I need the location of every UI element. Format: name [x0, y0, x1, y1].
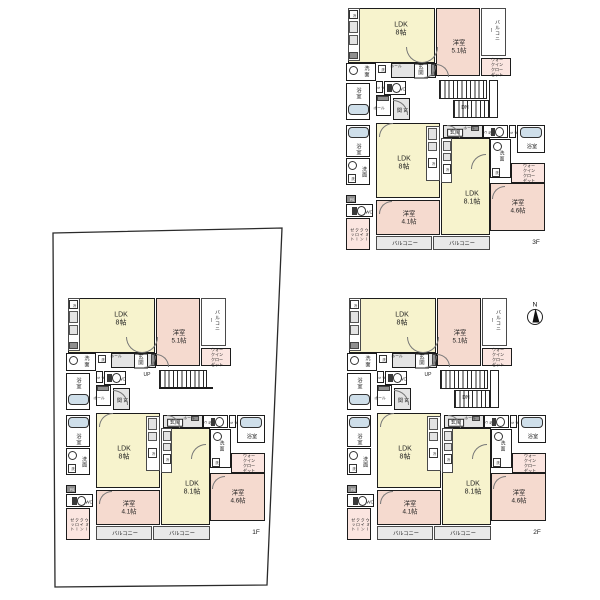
washer-glyph: 洗	[382, 358, 386, 362]
room-balcony-c: バルコニー	[434, 526, 491, 540]
toilet-bowl	[77, 496, 87, 506]
balcony-c-label: バルコニー	[449, 241, 475, 247]
kitchen-counter-icon	[443, 153, 451, 161]
bathtub-icon	[348, 104, 369, 115]
bathtub-icon	[349, 417, 370, 428]
toilet-tank	[107, 374, 112, 382]
wic-a-label: ウォークイン クローゼット	[491, 58, 504, 78]
washer-glyph: 洗	[215, 461, 219, 465]
sink-icon	[349, 66, 358, 75]
wic-c-label: ウォークイン クローゼット	[242, 454, 257, 474]
fridge-icon: 冷	[163, 454, 171, 464]
fridge-glyph: 冷	[432, 162, 436, 166]
ldk-b-label: LDK 8帖	[398, 446, 412, 463]
kitchen-counter-icon	[428, 142, 437, 151]
stair-landing-line	[159, 387, 213, 389]
wic-a-label: ウォークイン クローゼット	[492, 348, 505, 368]
ldk-a-label: LDK 8帖	[114, 312, 128, 329]
yoshitsu-51-label: 洋室 5.1帖	[452, 329, 467, 344]
fridge-icon: 冷	[444, 454, 452, 464]
stairs-upper-run	[439, 80, 487, 99]
storage-cabinet-icon	[472, 416, 480, 421]
room-balcony-c: バルコニー	[433, 236, 490, 250]
room-balcony-a: バルコニー	[481, 8, 506, 56]
ps-b-label: PS	[350, 198, 355, 202]
senmen-b-label: 洗面	[362, 456, 368, 467]
balcony-a-label: バルコニー	[489, 308, 501, 333]
kitchen-counter-icon	[350, 311, 359, 323]
sink-icon	[493, 142, 502, 151]
fridge-icon: 冷	[69, 300, 78, 309]
room-wic-b: ウォークイン クローゼット	[66, 508, 90, 540]
storage-cabinet-icon	[377, 96, 389, 101]
kitchen-counter-icon	[444, 443, 452, 451]
room-ps-a: P S	[376, 81, 383, 93]
wic-c-label: ウォークイン クローゼット	[523, 454, 538, 474]
balcony-c-label: バルコニー	[450, 531, 476, 537]
toilet-icon	[72, 496, 87, 506]
sink-icon	[494, 432, 503, 441]
kitchen-counter-icon	[350, 325, 359, 335]
room-balcony-a: バルコニー	[482, 298, 507, 346]
room-wic-b: ウォークイン クローゼット	[346, 218, 370, 250]
toilet-tank	[353, 497, 358, 505]
washer-glyph: 洗	[496, 461, 500, 465]
floor-number-label: 2F	[533, 529, 541, 537]
storage-cabinet-icon	[69, 342, 78, 349]
storage-cabinet-icon	[378, 386, 390, 391]
senmen-b-label: 洗面	[81, 456, 87, 467]
fridge-glyph: 冷	[353, 13, 357, 17]
sink-icon	[68, 451, 77, 460]
washer-glyph: 洗	[352, 467, 356, 471]
washer-glyph: 洗	[381, 68, 385, 72]
sink-icon	[69, 356, 78, 365]
stair-landing	[490, 370, 499, 408]
washing-machine-icon: 洗	[493, 458, 501, 467]
stairs-up-label: UP	[144, 372, 151, 378]
kitchen-counter-icon	[148, 432, 157, 441]
fridge-icon: 冷	[428, 158, 437, 168]
kitchen-counter-icon	[443, 141, 451, 151]
bath-a-label: 浴室	[354, 88, 364, 100]
room-ps-a: P S	[96, 371, 103, 383]
kitchen-counter-icon	[163, 443, 171, 451]
floor-number-label: 1F	[252, 529, 260, 537]
kitchen-counter-icon	[444, 431, 452, 441]
stairs-lower-run	[453, 100, 489, 118]
kitchen-counter-icon	[349, 21, 358, 33]
fridge-icon: 冷	[148, 448, 157, 458]
senmen-c-label: 洗面	[218, 441, 226, 453]
toilet-icon	[352, 206, 367, 216]
storage-cabinet-icon	[349, 52, 358, 59]
floor-1f: LDK 8帖洋室 5.1帖バルコニーウォークイン クローゼット玄関洗面P SWC…	[63, 298, 268, 546]
fridge-glyph: 冷	[433, 452, 437, 456]
floor-2f: LDK 8帖洋室 5.1帖バルコニーウォークイン クローゼット玄関洗面P SWC…	[344, 298, 549, 546]
fridge-glyph: 冷	[152, 452, 156, 456]
bathtub-icon	[521, 417, 543, 428]
stairs-upper-run	[440, 370, 488, 389]
bathtub-icon	[68, 394, 89, 405]
senmen-c-label: 洗面	[499, 441, 507, 453]
stairs-lower-run	[454, 390, 490, 408]
fridge-glyph: 冷	[73, 303, 77, 307]
toilet-bowl	[496, 417, 505, 427]
washing-machine-icon: 洗	[378, 65, 386, 74]
room-ps-b: PS	[346, 195, 356, 203]
kitchen-counter-icon	[429, 432, 438, 441]
room-ps-b: PS	[347, 485, 357, 493]
balcony-a-label: バルコニー	[488, 18, 500, 43]
room-ps-c: P S	[509, 125, 516, 138]
toilet-bowl	[358, 496, 368, 506]
fridge-icon: 冷	[349, 10, 358, 19]
room-ps-c: P S	[229, 415, 236, 428]
yoshitsu-51-label: 洋室 5.1帖	[171, 329, 186, 344]
washer-glyph: 洗	[351, 177, 355, 181]
kitchen-counter-icon	[429, 418, 438, 430]
room-balcony-a: バルコニー	[201, 298, 226, 346]
kitchen-counter-icon	[69, 325, 78, 335]
senmen-a-label: 洗面	[83, 356, 91, 368]
yoshitsu-46-label: 洋室 4.6帖	[511, 489, 526, 504]
room-ps-c: P S	[510, 415, 517, 428]
toilet-bowl	[357, 206, 367, 216]
bath-c-label: 浴室	[247, 434, 257, 440]
kitchen-counter-icon	[69, 311, 78, 323]
fridge-icon: 冷	[350, 300, 359, 309]
ldk-c-label: LDK 8.1帖	[465, 481, 482, 498]
bathtub-icon	[68, 417, 89, 428]
stair-landing	[489, 80, 498, 118]
yoshitsu-41-label: 洋室 4.1帖	[121, 500, 136, 515]
bath-b-label: 浴室	[74, 434, 84, 446]
bathtub-icon	[348, 127, 369, 138]
bath-a-label: 浴室	[74, 378, 84, 390]
ldk-b-label: LDK 8帖	[117, 446, 131, 463]
balcony-b-label: バルコニー	[112, 531, 138, 537]
washer-glyph: 洗	[495, 171, 499, 175]
bathtub-icon	[349, 394, 370, 405]
bath-b-label: 浴室	[354, 144, 364, 156]
ldk-c-label: LDK 8.1帖	[184, 481, 201, 498]
toilet-tank	[388, 374, 393, 382]
ldk-a-label: LDK 8帖	[394, 22, 408, 39]
yoshitsu-46-label: 洋室 4.6帖	[510, 199, 525, 214]
washer-glyph: 洗	[101, 358, 105, 362]
toilet-bowl	[393, 373, 403, 383]
toilet-bowl	[215, 417, 224, 427]
kitchen-counter-icon	[428, 128, 437, 140]
room-wic-c: ウォークイン クローゼット	[231, 453, 265, 473]
toilet-tank	[72, 497, 77, 505]
toilet-bowl	[495, 127, 504, 137]
room-wic-a: ウォークイン クローゼット	[482, 348, 512, 366]
room-ps-a: P S	[377, 371, 384, 383]
ps-b-label: PS	[351, 488, 356, 492]
bath-b-label: 浴室	[355, 434, 365, 446]
washing-machine-icon: 洗	[98, 355, 106, 364]
senmen-c-label: 洗面	[498, 151, 506, 163]
wic-b-label: ウォークイン クローゼット	[349, 228, 368, 242]
balcony-a-label: バルコニー	[208, 308, 220, 333]
storage-cabinet-icon	[471, 126, 479, 131]
floor-number-label: 3F	[532, 239, 540, 247]
room-balcony-b: バルコニー	[96, 526, 152, 540]
bath-a-label: 浴室	[355, 378, 365, 390]
room-wic-a: ウォークイン クローゼット	[481, 58, 511, 76]
bath-c-label: 浴室	[527, 144, 537, 150]
senmen-a-label: 洗面	[363, 66, 371, 78]
room-ps-b: PS	[66, 485, 76, 493]
wic-b-label: ウォークイン クローゼット	[350, 518, 369, 532]
room-wic-c: ウォークイン クローゼット	[512, 453, 546, 473]
room-wic-a: ウォークイン クローゼット	[201, 348, 231, 366]
fridge-glyph: 冷	[447, 458, 451, 462]
toilet-tank	[387, 84, 392, 92]
fridge-glyph: 冷	[354, 303, 358, 307]
yoshitsu-41-label: 洋室 4.1帖	[402, 500, 417, 515]
room-balcony-b: バルコニー	[377, 526, 433, 540]
toilet-icon	[211, 417, 225, 427]
ldk-a-label: LDK 8帖	[395, 312, 409, 329]
toilet-bowl	[392, 83, 402, 93]
toilet-icon	[491, 127, 505, 137]
wic-b-label: ウォークイン クローゼット	[69, 518, 88, 532]
balcony-c-label: バルコニー	[169, 531, 195, 537]
floor-3f: LDK 8帖洋室 5.1帖バルコニーウォークイン クローゼット玄関洗面P SWC…	[343, 8, 548, 256]
yoshitsu-51-label: 洋室 5.1帖	[451, 39, 466, 54]
balcony-b-label: バルコニー	[392, 241, 418, 247]
sink-icon	[348, 161, 357, 170]
bathtub-icon	[240, 417, 262, 428]
washing-machine-icon: 洗	[379, 355, 387, 364]
ps-b-label: PS	[70, 488, 75, 492]
toilet-bowl	[112, 373, 122, 383]
senmen-a-label: 洗面	[364, 356, 372, 368]
toilet-icon	[492, 417, 506, 427]
wic-a-label: ウォークイン クローゼット	[211, 348, 224, 368]
floorplans-canvas: LDK 8帖洋室 5.1帖バルコニーウォークイン クローゼット玄関洗面P SWC…	[0, 0, 600, 600]
kitchen-counter-icon	[163, 431, 171, 441]
kitchen-counter-icon	[148, 418, 157, 430]
yoshitsu-46-label: 洋室 4.6帖	[230, 489, 245, 504]
kitchen-counter-icon	[349, 35, 358, 45]
bathtub-icon	[520, 127, 542, 138]
washing-machine-icon: 洗	[348, 174, 356, 183]
balcony-b-label: バルコニー	[393, 531, 419, 537]
storage-cabinet-icon	[350, 342, 359, 349]
washing-machine-icon: 洗	[492, 168, 500, 177]
washer-glyph: 洗	[71, 467, 75, 471]
fridge-icon: 冷	[443, 164, 451, 174]
toilet-icon	[107, 373, 122, 383]
fridge-glyph: 冷	[446, 168, 450, 172]
room-balcony-c: バルコニー	[153, 526, 210, 540]
ldk-b-label: LDK 8帖	[397, 156, 411, 173]
wic-c-label: ウォークイン クローゼット	[522, 164, 537, 184]
bath-c-label: 浴室	[528, 434, 538, 440]
washing-machine-icon: 洗	[349, 464, 357, 473]
yoshitsu-41-label: 洋室 4.1帖	[401, 210, 416, 225]
sink-icon	[350, 356, 359, 365]
storage-cabinet-icon	[191, 416, 199, 421]
washing-machine-icon: 洗	[68, 464, 76, 473]
room-wic-b: ウォークイン クローゼット	[347, 508, 371, 540]
sink-icon	[349, 451, 358, 460]
sink-icon	[213, 432, 222, 441]
storage-cabinet-icon	[97, 386, 109, 391]
room-wic-c: ウォークイン クローゼット	[511, 163, 545, 183]
stairs-up-label: UP	[425, 372, 432, 378]
toilet-icon	[388, 373, 403, 383]
toilet-tank	[352, 207, 357, 215]
toilet-icon	[353, 496, 368, 506]
washing-machine-icon: 洗	[212, 458, 220, 467]
room-balcony-b: バルコニー	[376, 236, 432, 250]
senmen-b-label: 洗面	[361, 166, 367, 177]
fridge-glyph: 冷	[166, 458, 170, 462]
fridge-icon: 冷	[429, 448, 438, 458]
toilet-icon	[387, 83, 402, 93]
ldk-c-label: LDK 8.1帖	[464, 191, 481, 208]
